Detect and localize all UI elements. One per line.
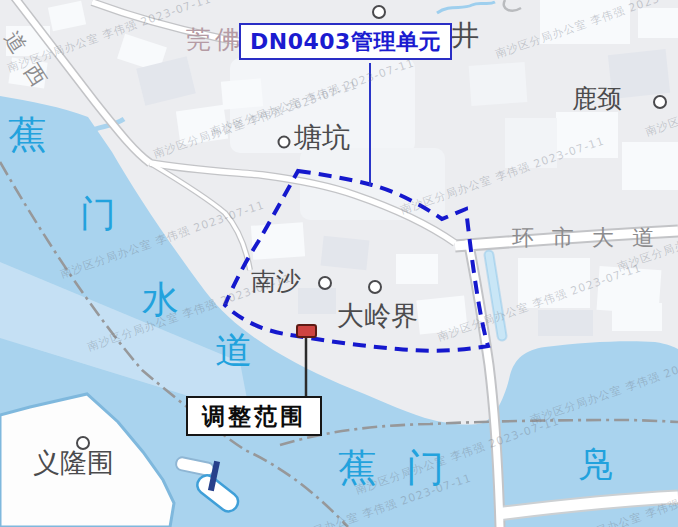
- village-marker: [369, 281, 381, 293]
- place-label-tangkeng: 塘坑: [294, 124, 350, 152]
- adjust-range-label-box: 调整范围: [186, 396, 322, 436]
- water-label-channel-shui: 水: [142, 281, 179, 318]
- water-label-channel-men: 门: [80, 196, 116, 232]
- water-label-channel-dao: 道: [215, 332, 252, 369]
- village-marker: [373, 6, 385, 18]
- expressway-label-guanfo: 莞佛: [186, 27, 244, 52]
- adjust-area-marker: [297, 325, 316, 337]
- water-label-channel-jiao: 蕉: [8, 116, 46, 154]
- place-label-dalingjie: 大岭界: [337, 302, 418, 329]
- map[interactable]: 南沙区分局办公室 李伟强 2023-07-11 南沙区分局办公室 李伟强 202…: [0, 0, 678, 527]
- place-label-nansha: 南沙: [251, 269, 301, 294]
- village-marker: [319, 277, 331, 289]
- road-label-huanshi-avenue: 环市大道: [512, 227, 672, 249]
- village-marker: [654, 96, 666, 108]
- water-label-jiaomen-estuary: 蕉门: [338, 449, 474, 487]
- place-label-lujing: 鹿颈: [572, 86, 622, 111]
- village-marker: [279, 137, 290, 148]
- unit-label-box: DN0403管理单元: [239, 23, 452, 60]
- place-label-jing: 井: [451, 22, 479, 50]
- place-label-yilongwei: 义隆围: [33, 449, 114, 476]
- water-label-fu: 凫: [578, 447, 613, 482]
